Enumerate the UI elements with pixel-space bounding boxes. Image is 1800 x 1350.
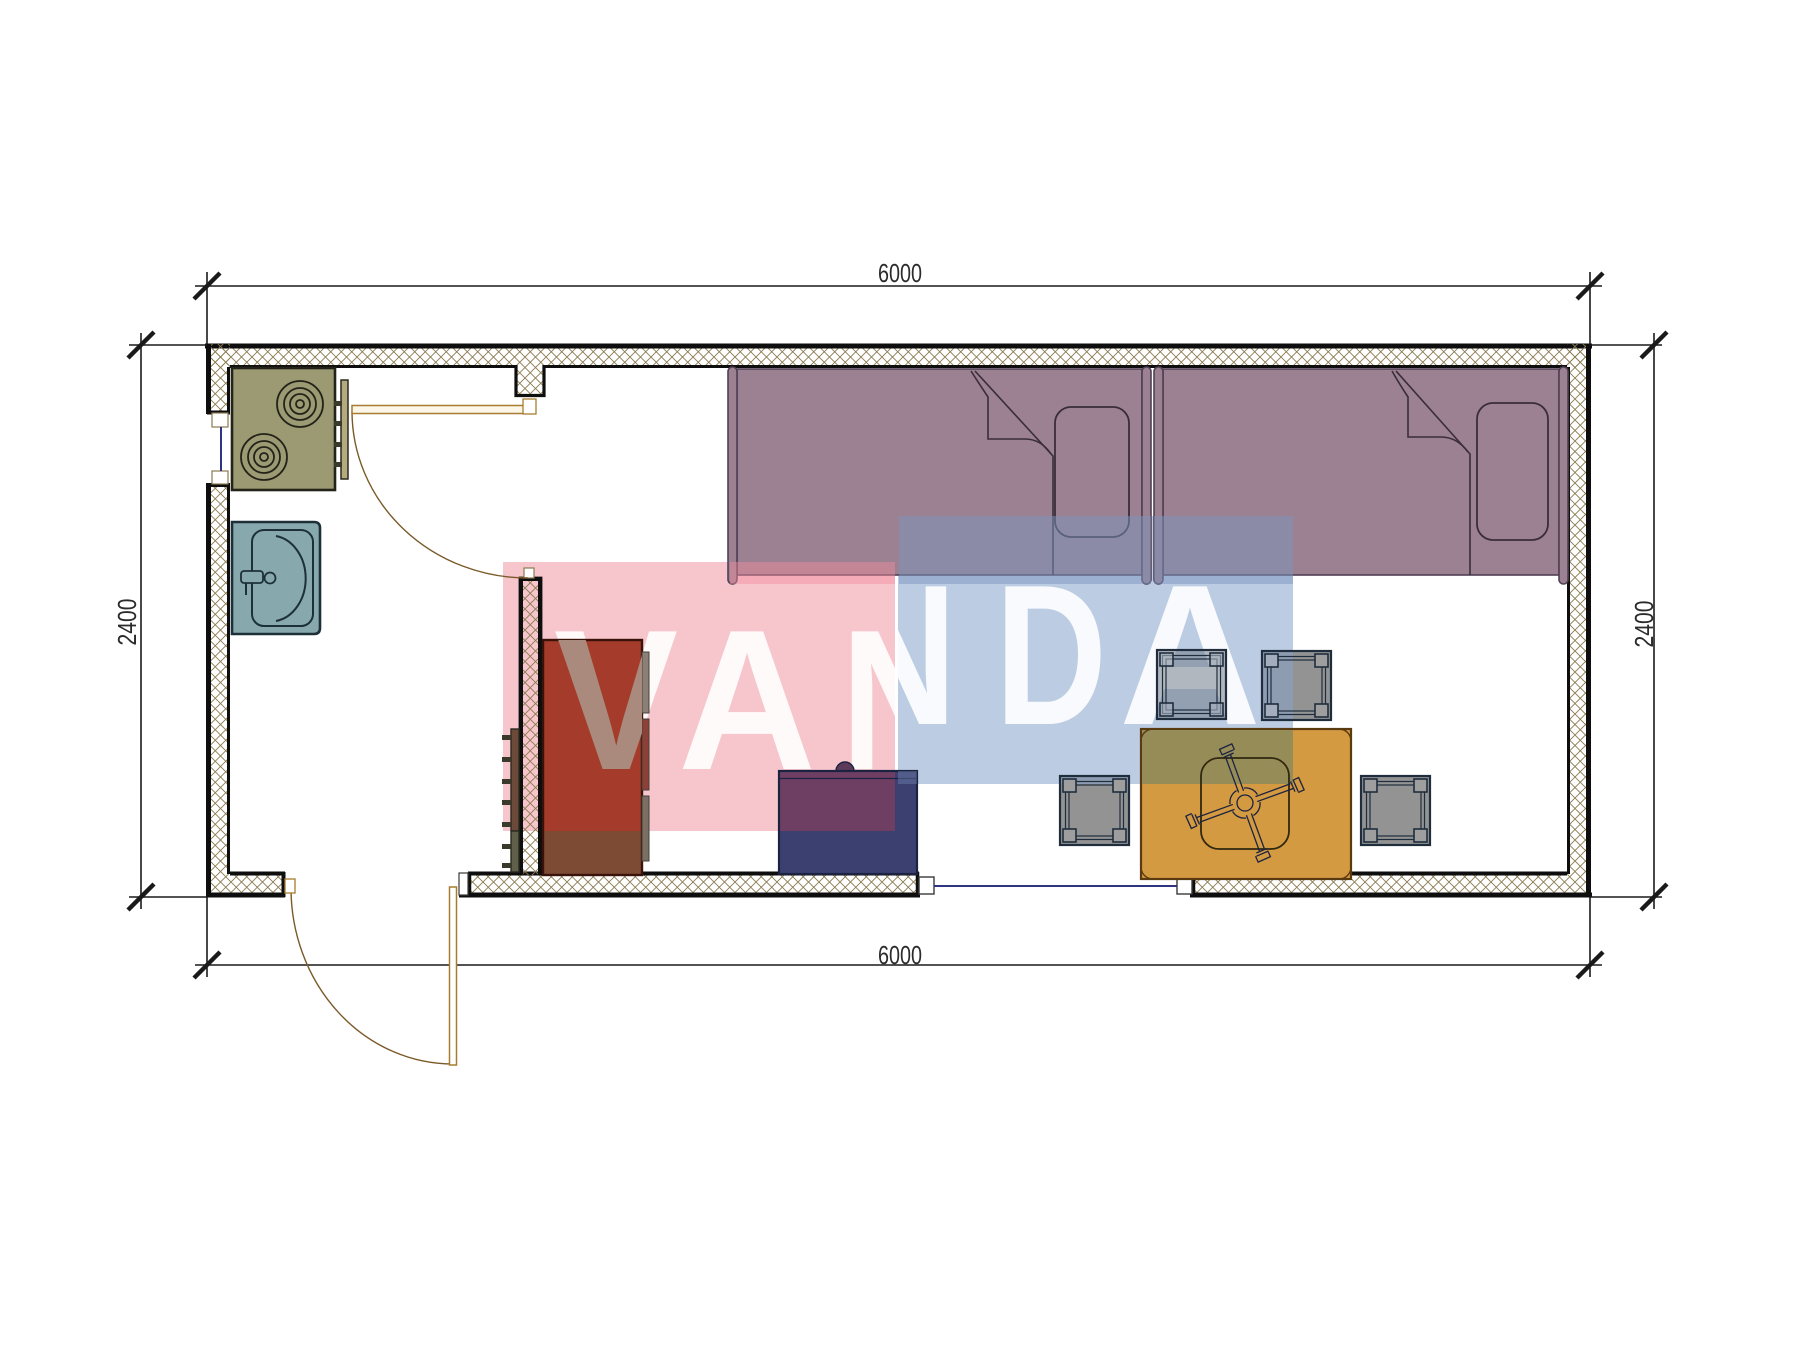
svg-text:6000: 6000 (878, 258, 922, 288)
svg-text:2400: 2400 (112, 599, 142, 646)
svg-text:6000: 6000 (878, 940, 922, 970)
svg-text:2400: 2400 (1629, 601, 1659, 648)
